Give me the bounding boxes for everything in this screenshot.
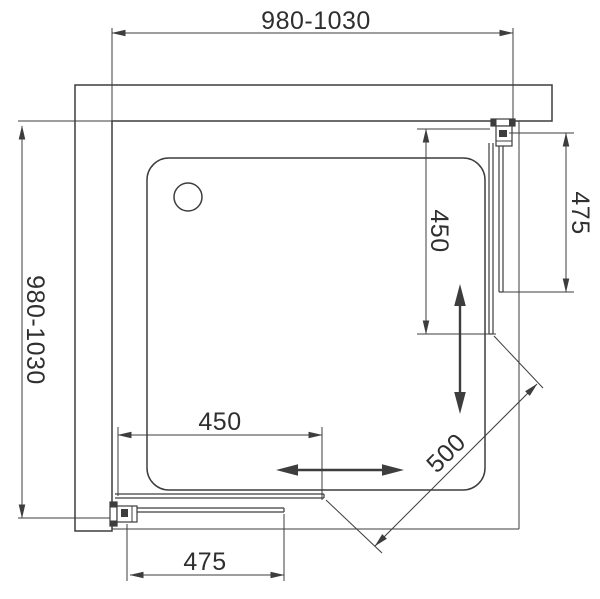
- right-sliding-door: [489, 143, 493, 334]
- enclosure-frame: [112, 121, 519, 529]
- dimension-bottom-door: 450: [118, 408, 322, 500]
- dimension-top-width: 980-1030: [112, 7, 513, 121]
- right-fixed-panel: [499, 146, 503, 292]
- dim-label-right-panel: 475: [566, 191, 594, 234]
- dimension-left-depth: 980-1030: [18, 121, 112, 518]
- dim-label-top-width: 980-1030: [261, 7, 371, 35]
- dim-label-bottom-panel: 475: [183, 548, 226, 576]
- dim-label-diagonal-entry: 500: [421, 428, 471, 478]
- shower-plan-svg: 980-1030 980-1030 475 450 450 475: [0, 0, 600, 599]
- dim-label-bottom-door: 450: [198, 408, 241, 436]
- bottom-fixed-panel: [136, 508, 284, 512]
- drain-circle: [174, 183, 202, 211]
- dimension-bottom-panel: 475: [127, 514, 284, 581]
- slide-arrow-horizontal: [276, 464, 404, 476]
- dimension-diagonal-entry: 500: [326, 336, 543, 553]
- dimension-right-panel: 475: [501, 133, 594, 292]
- technical-drawing: 980-1030 980-1030 475 450 450 475: [0, 0, 600, 599]
- dim-label-left-depth: 980-1030: [21, 275, 49, 385]
- slide-arrow-vertical: [454, 284, 466, 414]
- wall-bracket-bottom-left: [110, 502, 137, 526]
- dim-label-right-door: 450: [425, 209, 453, 252]
- bottom-sliding-door: [115, 494, 324, 498]
